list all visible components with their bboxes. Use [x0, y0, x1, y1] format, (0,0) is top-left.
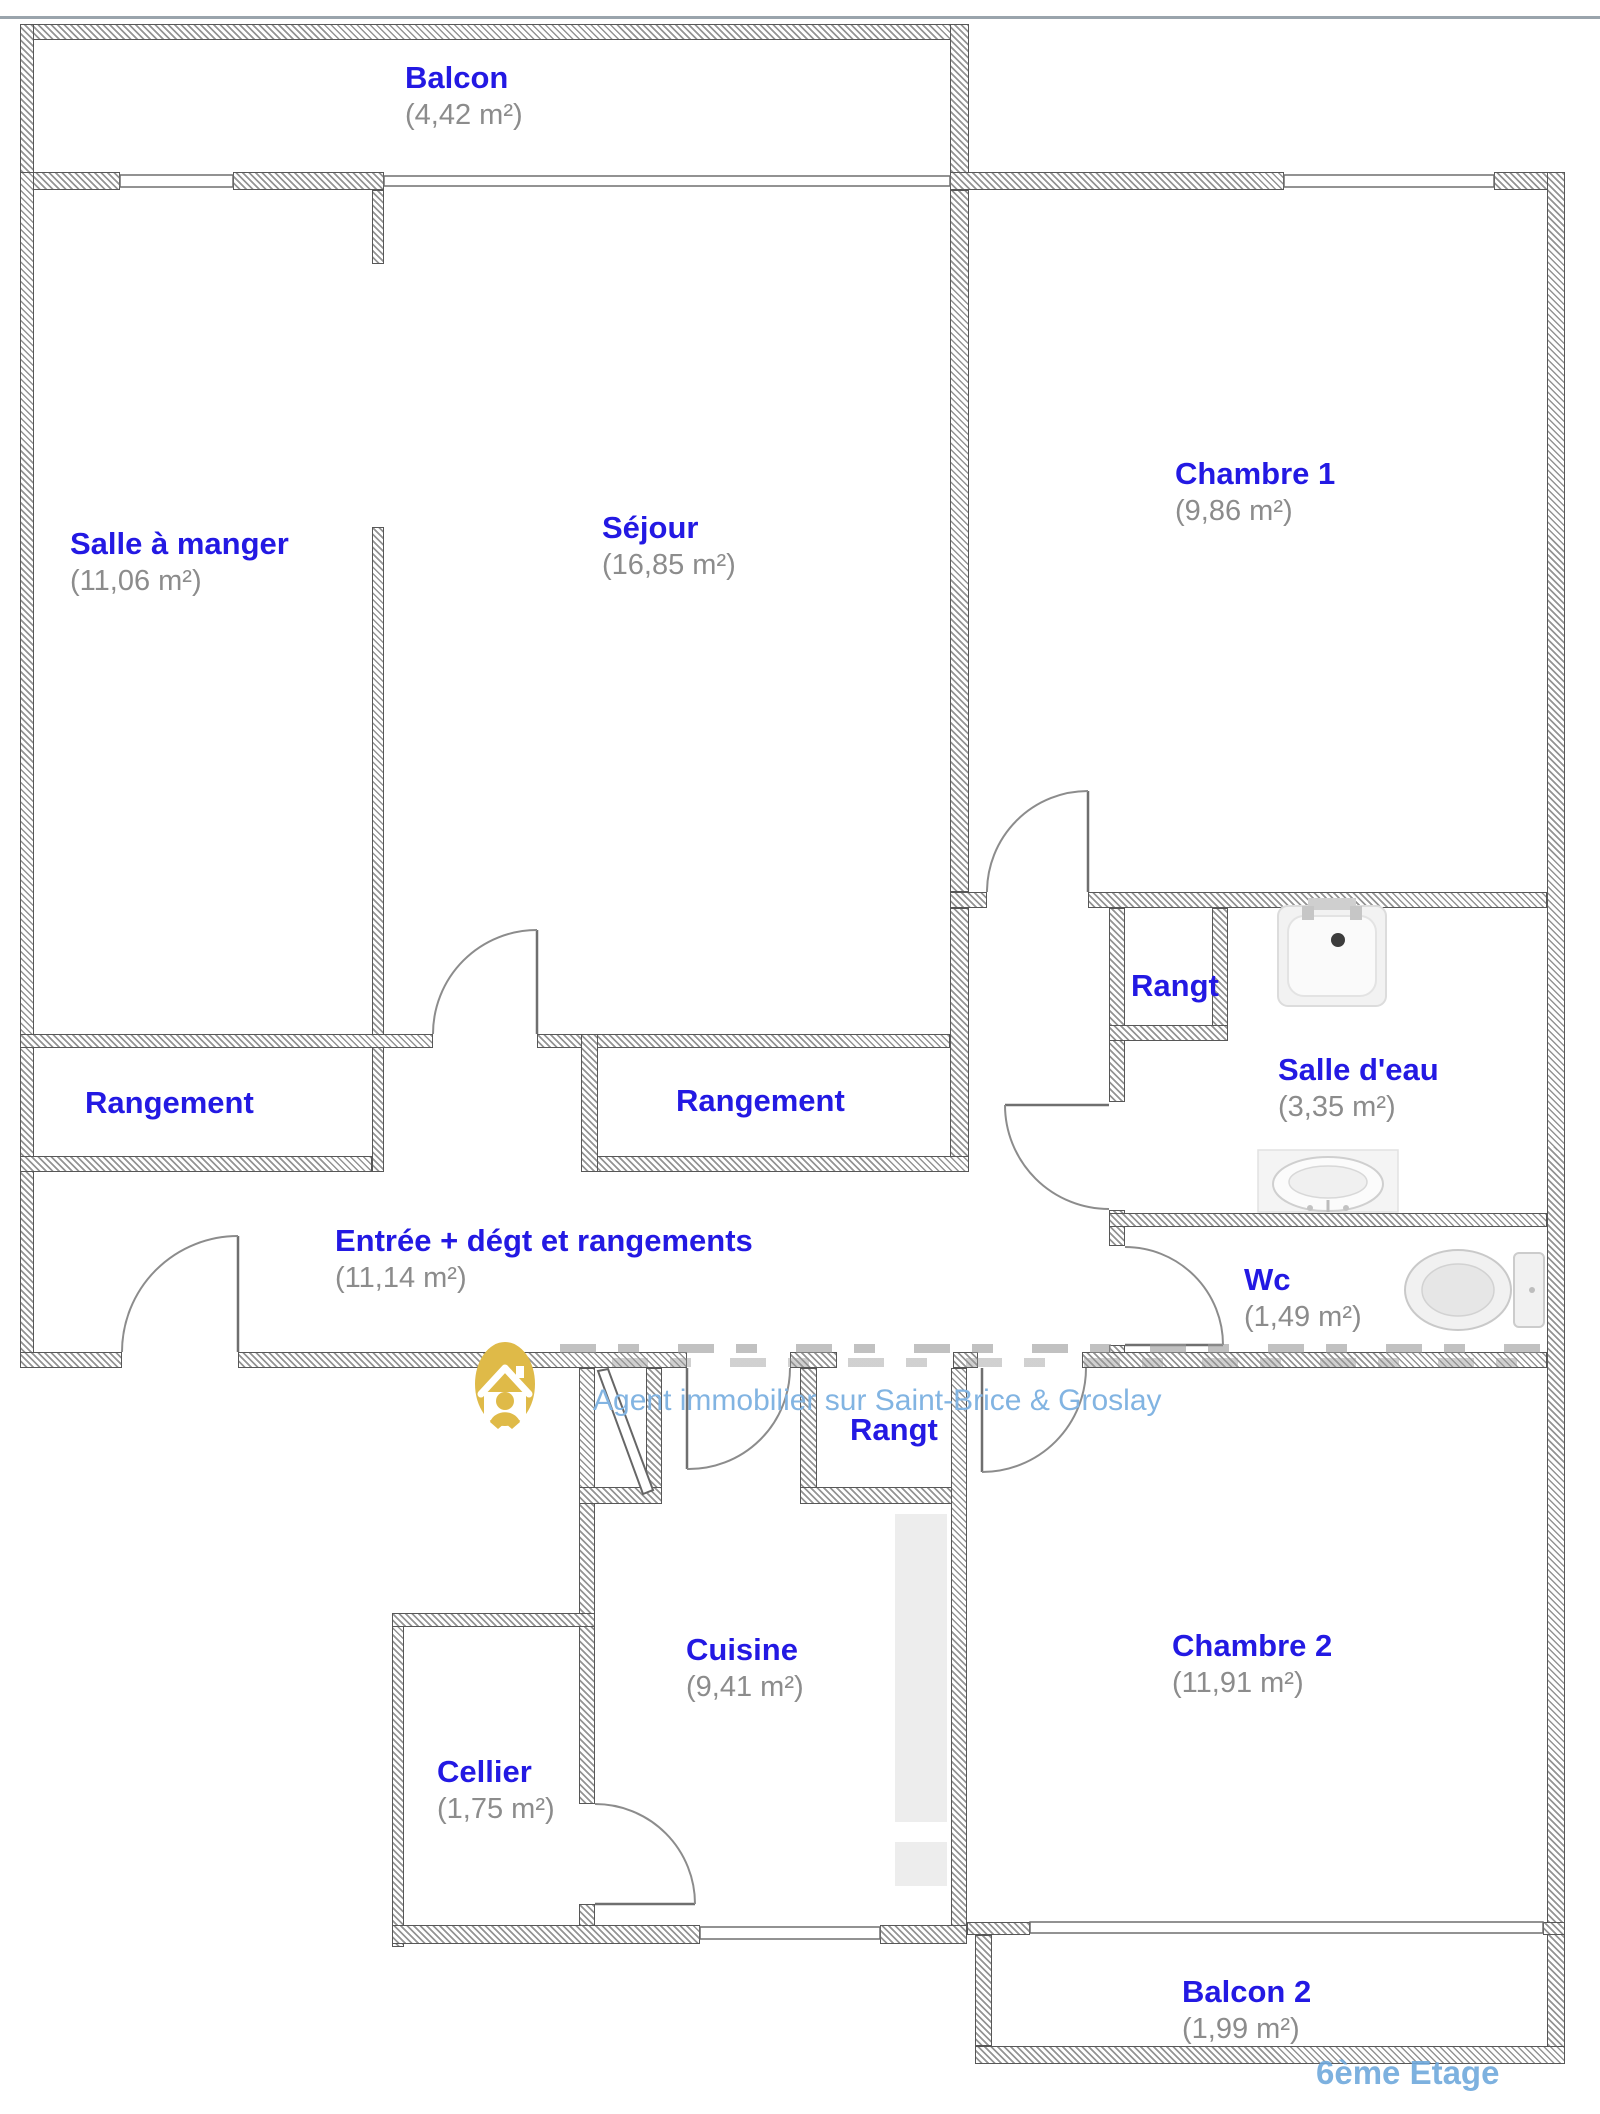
wall — [579, 1487, 662, 1504]
wall — [372, 190, 384, 264]
room-area: (11,06 m²) — [70, 563, 289, 599]
room-label-entree: Entrée + dégt et rangements (11,14 m²) — [335, 1221, 753, 1296]
room-area: (3,35 m²) — [1278, 1089, 1439, 1125]
window-chambre1 — [1284, 175, 1494, 187]
wall — [950, 172, 1284, 190]
toilet-icon — [1405, 1250, 1544, 1330]
sink-icon — [1258, 1150, 1398, 1212]
room-name: Chambre 1 — [1175, 454, 1335, 493]
wall — [20, 24, 34, 190]
kitchen-duct-shaft — [895, 1514, 947, 1822]
room-name: Entrée + dégt et rangements — [335, 1221, 753, 1260]
window-salle-a-manger — [120, 175, 233, 187]
room-label-cellier: Cellier (1,75 m²) — [437, 1752, 555, 1827]
room-label-chambre2: Chambre 2 (11,91 m²) — [1172, 1626, 1332, 1701]
wall — [20, 1034, 433, 1048]
room-name: Balcon — [405, 58, 523, 97]
room-name: Rangement — [676, 1081, 845, 1120]
room-area: (1,99 m²) — [1182, 2011, 1311, 2047]
wall — [20, 1156, 372, 1172]
wall — [392, 1613, 404, 1947]
wall — [20, 172, 120, 190]
room-label-balcon2: Balcon 2 (1,99 m²) — [1182, 1972, 1311, 2047]
window-cuisine — [700, 1927, 880, 1939]
room-name: Salle à manger — [70, 524, 289, 563]
floor-note-text: 6ème Etage — [1316, 2054, 1499, 2092]
wall — [950, 892, 987, 908]
wall — [800, 1487, 963, 1504]
room-name: Balcon 2 — [1182, 1972, 1311, 2011]
kitchen-duct-shaft — [895, 1842, 947, 1886]
door-salle-eau — [1005, 1105, 1109, 1209]
door-entree — [122, 1236, 238, 1352]
room-name: Rangt — [1131, 966, 1219, 1005]
room-name: Séjour — [602, 508, 736, 547]
room-area: (4,42 m²) — [405, 97, 523, 133]
wall — [950, 190, 969, 892]
room-label-balcon: Balcon (4,42 m²) — [405, 58, 523, 133]
wall — [579, 1368, 595, 1804]
watermark-gray-fragments — [560, 1344, 1545, 1353]
wall — [537, 1034, 950, 1048]
room-name: Salle d'eau — [1278, 1050, 1439, 1089]
room-area: (11,91 m²) — [1172, 1665, 1332, 1701]
wall — [1109, 908, 1125, 1102]
room-area: (1,75 m²) — [437, 1791, 555, 1827]
wall — [1088, 892, 1547, 908]
room-name: Wc — [1244, 1260, 1362, 1299]
wall — [581, 1034, 598, 1172]
window-sejour-bay — [384, 176, 950, 186]
room-area: (9,41 m²) — [686, 1669, 804, 1705]
floor-plan: Balcon (4,42 m²) Salle à manger (11,06 m… — [0, 0, 1600, 2114]
wall — [1109, 1213, 1547, 1227]
wall — [372, 527, 384, 1172]
room-label-rangement-gauche: Rangement — [85, 1083, 254, 1122]
room-label-sejour: Séjour (16,85 m²) — [602, 508, 736, 583]
room-name: Chambre 2 — [1172, 1626, 1332, 1665]
watermark-gray-fragments — [612, 1358, 1542, 1367]
room-label-chambre1: Chambre 1 (9,86 m²) — [1175, 454, 1335, 529]
room-name: Cellier — [437, 1752, 555, 1791]
room-label-salle-eau: Salle d'eau (3,35 m²) — [1278, 1050, 1439, 1125]
wall — [20, 24, 969, 40]
wall — [20, 172, 34, 1368]
room-label-rangement-droit: Rangement — [676, 1081, 845, 1120]
door-wc — [1125, 1247, 1223, 1345]
room-area: (9,86 m²) — [1175, 493, 1335, 529]
door-chambre1 — [987, 791, 1088, 892]
wall — [1543, 1922, 1565, 1935]
wall — [20, 1352, 122, 1368]
door-cellier — [595, 1804, 695, 1904]
room-label-rangt-salle-eau: Rangt — [1131, 966, 1219, 1005]
room-name: Rangement — [85, 1083, 254, 1122]
room-label-cuisine: Cuisine (9,41 m²) — [686, 1630, 804, 1705]
wall — [950, 908, 969, 1172]
wall — [951, 1368, 967, 1944]
wall — [975, 1935, 992, 2046]
shower-tray-icon — [1278, 898, 1386, 1006]
room-name: Cuisine — [686, 1630, 804, 1669]
wall — [967, 1922, 1030, 1935]
page-top-rule — [0, 16, 1600, 19]
window-chambre2-balcon — [1030, 1922, 1543, 1933]
wall — [233, 172, 384, 190]
room-area: (1,49 m²) — [1244, 1299, 1362, 1335]
wall — [581, 1156, 969, 1172]
wall — [950, 24, 969, 190]
wall — [392, 1925, 700, 1944]
room-label-wc: Wc (1,49 m²) — [1244, 1260, 1362, 1335]
room-area: (11,14 m²) — [335, 1260, 753, 1296]
wall — [392, 1613, 595, 1627]
door-sejour — [433, 930, 537, 1034]
room-area: (16,85 m²) — [602, 547, 736, 583]
wall — [1547, 172, 1565, 2064]
wall — [1109, 1025, 1228, 1041]
room-label-salle-a-manger: Salle à manger (11,06 m²) — [70, 524, 289, 599]
wall — [880, 1925, 967, 1944]
watermark-agency-text: Agent immobilier sur Saint-Brice & Grosl… — [593, 1384, 1162, 1418]
